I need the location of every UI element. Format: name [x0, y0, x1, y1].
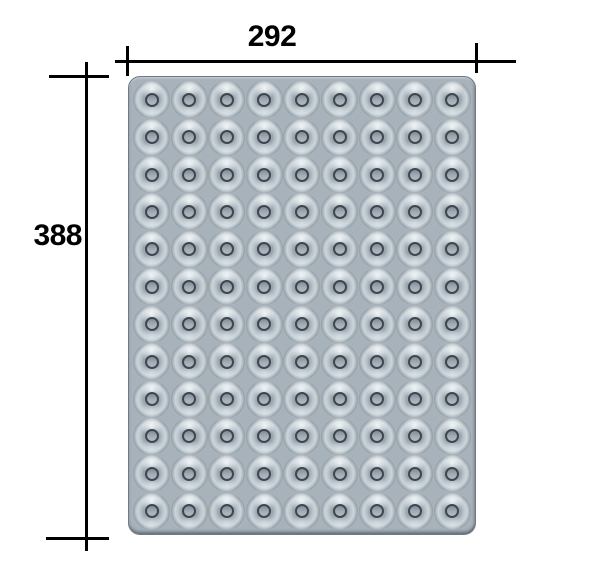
tray-cell [321, 455, 359, 492]
donut-cavity [434, 268, 471, 305]
donut-cavity [283, 193, 320, 230]
tray-cell [358, 493, 396, 530]
tray-cell [321, 380, 359, 417]
tray-cell [208, 81, 246, 118]
donut-cavity [208, 418, 245, 455]
donut-hole [220, 242, 234, 256]
tray-cell [133, 418, 171, 455]
donut-cavity [133, 156, 170, 193]
width-dimension-tick-right [475, 43, 478, 73]
tray-cell [321, 81, 359, 118]
donut-cavity [133, 381, 170, 418]
donut-hole [408, 280, 422, 294]
donut-hole [370, 205, 384, 219]
tray-cell [283, 268, 321, 305]
donut-hole [408, 467, 422, 481]
donut-hole [182, 280, 196, 294]
donut-cavity [434, 343, 471, 380]
donut-cavity [208, 493, 245, 530]
donut-cavity [246, 81, 283, 118]
tray-cell [208, 268, 246, 305]
tray-cell [133, 343, 171, 380]
donut-cavity [171, 268, 208, 305]
donut-cavity [359, 306, 396, 343]
tray-cell [246, 81, 284, 118]
drawing-canvas: 292 388 [0, 0, 600, 586]
donut-cavity [133, 455, 170, 492]
donut-hole [182, 205, 196, 219]
tray-cell [133, 493, 171, 530]
tray-cell [396, 118, 434, 155]
donut-cavity [434, 231, 471, 268]
donut-cavity [283, 268, 320, 305]
donut-hole [333, 168, 347, 182]
tray-cell [358, 81, 396, 118]
donut-hole [220, 168, 234, 182]
tray-cell [133, 193, 171, 230]
tray-cell [246, 118, 284, 155]
donut-cavity [283, 156, 320, 193]
donut-cavity [359, 268, 396, 305]
donut-hole [182, 242, 196, 256]
donut-cavity [208, 119, 245, 156]
donut-hole [220, 467, 234, 481]
donut-cavity [133, 493, 170, 530]
donut-hole [408, 242, 422, 256]
tray-cell [396, 380, 434, 417]
donut-hole [370, 130, 384, 144]
donut-hole [257, 355, 271, 369]
donut-hole [182, 130, 196, 144]
donut-hole [408, 392, 422, 406]
tray-cell [396, 268, 434, 305]
tray-cell [133, 268, 171, 305]
donut-cavity [283, 231, 320, 268]
donut-cavity [283, 306, 320, 343]
donut-cavity [208, 268, 245, 305]
tray-cell [283, 455, 321, 492]
tray-cell [246, 380, 284, 417]
tray-cell [433, 81, 471, 118]
donut-cavity [321, 418, 358, 455]
donut-hole [182, 355, 196, 369]
donut-cavity [133, 119, 170, 156]
donut-cavity [208, 193, 245, 230]
donut-cavity [171, 193, 208, 230]
donut-hole [370, 392, 384, 406]
donut-cavity [283, 343, 320, 380]
donut-cavity [359, 455, 396, 492]
donut-cavity [359, 343, 396, 380]
donut-hole [408, 93, 422, 107]
tray-cell [396, 81, 434, 118]
donut-cavity [321, 343, 358, 380]
tray-cell [433, 455, 471, 492]
tray-cell [396, 343, 434, 380]
donut-cavity [434, 455, 471, 492]
donut-hole [182, 467, 196, 481]
tray-cell [321, 493, 359, 530]
donut-cavity [359, 381, 396, 418]
donut-cavity [246, 193, 283, 230]
donut-hole [445, 467, 459, 481]
donut-cavity [321, 156, 358, 193]
donut-cavity [246, 455, 283, 492]
tray-cell [208, 380, 246, 417]
tray-cell [396, 231, 434, 268]
donut-hole [295, 429, 309, 443]
donut-hole [333, 93, 347, 107]
tray-cell [283, 81, 321, 118]
donut-cavity [133, 306, 170, 343]
tray-cell [208, 455, 246, 492]
donut-hole [182, 93, 196, 107]
tray-cell [396, 493, 434, 530]
donut-cavity [321, 381, 358, 418]
donut-cavity [396, 455, 433, 492]
tray [128, 76, 476, 535]
donut-cavity [246, 119, 283, 156]
tray-cell [133, 231, 171, 268]
donut-hole [333, 205, 347, 219]
tray-cell [433, 268, 471, 305]
tray-cell [133, 306, 171, 343]
donut-cavity [359, 156, 396, 193]
donut-hole [182, 392, 196, 406]
tray-cell [246, 156, 284, 193]
donut-hole [333, 355, 347, 369]
donut-hole [445, 504, 459, 518]
height-dimension-line [85, 62, 88, 551]
tray-cell [133, 156, 171, 193]
tray-cell [246, 231, 284, 268]
donut-hole [257, 242, 271, 256]
donut-hole [295, 93, 309, 107]
donut-hole [220, 280, 234, 294]
tray-cell [358, 268, 396, 305]
donut-hole [295, 242, 309, 256]
donut-hole [408, 205, 422, 219]
donut-cavity [171, 81, 208, 118]
donut-cavity [396, 493, 433, 530]
tray-cell [171, 493, 209, 530]
tray-cell [171, 231, 209, 268]
donut-hole [220, 504, 234, 518]
donut-hole [182, 317, 196, 331]
donut-cavity [208, 343, 245, 380]
donut-hole [370, 168, 384, 182]
donut-hole [333, 130, 347, 144]
donut-cavity [171, 306, 208, 343]
donut-cavity [396, 81, 433, 118]
donut-cavity [396, 119, 433, 156]
tray-cell [321, 306, 359, 343]
tray-cell [208, 193, 246, 230]
donut-hole [145, 280, 159, 294]
tray-cell [358, 455, 396, 492]
donut-hole [370, 317, 384, 331]
donut-hole [145, 168, 159, 182]
tray-cell [283, 343, 321, 380]
donut-cavity [171, 418, 208, 455]
tray-cell [246, 343, 284, 380]
tray-cell [358, 343, 396, 380]
tray-cell [358, 193, 396, 230]
donut-cavity [321, 493, 358, 530]
donut-cavity [133, 193, 170, 230]
donut-hole [257, 130, 271, 144]
donut-hole [145, 392, 159, 406]
donut-cavity [171, 493, 208, 530]
donut-hole [145, 504, 159, 518]
donut-hole [295, 205, 309, 219]
height-dimension-label: 388 [22, 221, 82, 251]
tray-cell [321, 193, 359, 230]
tray-cell [321, 118, 359, 155]
donut-cavity [283, 381, 320, 418]
donut-hole [145, 429, 159, 443]
tray-cell [171, 268, 209, 305]
donut-hole [257, 429, 271, 443]
tray-cell [208, 343, 246, 380]
donut-hole [370, 242, 384, 256]
donut-hole [295, 168, 309, 182]
donut-hole [370, 93, 384, 107]
donut-cavity [208, 81, 245, 118]
donut-cavity [396, 268, 433, 305]
tray-cell [358, 380, 396, 417]
donut-hole [370, 355, 384, 369]
donut-hole [408, 317, 422, 331]
donut-cavity [171, 381, 208, 418]
donut-cavity [283, 493, 320, 530]
donut-cavity [396, 343, 433, 380]
donut-cavity [133, 418, 170, 455]
donut-cavity [208, 306, 245, 343]
width-dimension-label: 292 [222, 22, 322, 52]
tray-cell [133, 118, 171, 155]
tray-cell [321, 418, 359, 455]
tray-cell [358, 231, 396, 268]
tray-cell [396, 156, 434, 193]
donut-cavity [208, 455, 245, 492]
tray-cell [133, 81, 171, 118]
tray-cell [433, 193, 471, 230]
donut-cavity [396, 156, 433, 193]
tray-cell [396, 193, 434, 230]
donut-hole [333, 392, 347, 406]
donut-hole [445, 429, 459, 443]
tray-cell [283, 493, 321, 530]
donut-cavity [283, 455, 320, 492]
tray-cell [246, 306, 284, 343]
donut-cavity [396, 381, 433, 418]
tray-cell [171, 380, 209, 417]
donut-cavity [434, 81, 471, 118]
width-dimension-line [115, 60, 516, 63]
donut-cavity [396, 193, 433, 230]
donut-cavity [359, 418, 396, 455]
donut-hole [220, 429, 234, 443]
donut-hole [295, 392, 309, 406]
tray-cell [246, 418, 284, 455]
donut-hole [295, 355, 309, 369]
donut-cavity [396, 418, 433, 455]
donut-hole [333, 242, 347, 256]
tray-cell [433, 418, 471, 455]
donut-cavity [171, 455, 208, 492]
tray-cell [433, 343, 471, 380]
donut-cavity [208, 156, 245, 193]
tray-cell [246, 268, 284, 305]
tray-cell [208, 493, 246, 530]
donut-cavity [434, 418, 471, 455]
tray-cell [321, 343, 359, 380]
donut-cavity [434, 493, 471, 530]
donut-hole [145, 205, 159, 219]
donut-hole [257, 504, 271, 518]
tray-cell [283, 193, 321, 230]
donut-cavity [434, 306, 471, 343]
donut-hole [408, 429, 422, 443]
tray-cell [246, 493, 284, 530]
donut-cavity [396, 306, 433, 343]
donut-hole [145, 355, 159, 369]
tray-cell [208, 231, 246, 268]
tray-cell [358, 418, 396, 455]
donut-cavity [283, 81, 320, 118]
tray-cell [171, 455, 209, 492]
tray-cell [133, 380, 171, 417]
donut-cavity [208, 231, 245, 268]
donut-cavity [359, 231, 396, 268]
width-dimension-tick-left [126, 46, 129, 76]
donut-hole [220, 93, 234, 107]
donut-cavity [434, 381, 471, 418]
donut-hole [408, 504, 422, 518]
donut-hole [408, 355, 422, 369]
tray-cell [321, 156, 359, 193]
donut-hole [333, 317, 347, 331]
donut-cavity [246, 343, 283, 380]
donut-cavity [359, 193, 396, 230]
donut-cavity [321, 231, 358, 268]
height-dimension-tick-bottom [46, 537, 109, 540]
donut-cavity [321, 455, 358, 492]
tray-cell [396, 418, 434, 455]
donut-hole [408, 130, 422, 144]
tray-cell [433, 231, 471, 268]
tray-cell [283, 231, 321, 268]
donut-cavity [246, 306, 283, 343]
donut-hole [445, 242, 459, 256]
tray-cell [171, 156, 209, 193]
donut-hole [295, 504, 309, 518]
tray-cell [246, 193, 284, 230]
donut-cavity [321, 193, 358, 230]
donut-cavity [246, 156, 283, 193]
donut-cavity [246, 493, 283, 530]
donut-cavity [171, 119, 208, 156]
donut-hole [145, 242, 159, 256]
donut-hole [333, 429, 347, 443]
tray-cell [171, 306, 209, 343]
donut-cavity [359, 81, 396, 118]
tray-cell [283, 418, 321, 455]
donut-cavity [246, 418, 283, 455]
donut-hole [445, 93, 459, 107]
donut-hole [370, 429, 384, 443]
donut-hole [333, 504, 347, 518]
donut-hole [445, 392, 459, 406]
tray-cell [433, 380, 471, 417]
donut-cavity [171, 343, 208, 380]
donut-cavity [133, 81, 170, 118]
tray-cell [171, 343, 209, 380]
donut-hole [333, 280, 347, 294]
donut-hole [445, 168, 459, 182]
tray-cell [171, 193, 209, 230]
tray-cell [321, 268, 359, 305]
donut-hole [145, 130, 159, 144]
donut-cavity [133, 231, 170, 268]
donut-hole [220, 317, 234, 331]
donut-cavity [208, 381, 245, 418]
tray-cell [171, 418, 209, 455]
tray-cell [283, 306, 321, 343]
tray-cell [171, 81, 209, 118]
donut-hole [295, 317, 309, 331]
donut-hole [182, 429, 196, 443]
donut-hole [220, 355, 234, 369]
height-dimension-tick-top [49, 75, 109, 78]
donut-hole [257, 168, 271, 182]
tray-cell [246, 455, 284, 492]
donut-hole [370, 504, 384, 518]
donut-hole [445, 205, 459, 219]
tray-cell [433, 156, 471, 193]
donut-cavity [321, 306, 358, 343]
donut-cavity [434, 156, 471, 193]
donut-hole [295, 280, 309, 294]
donut-cavity [283, 119, 320, 156]
donut-cavity [283, 418, 320, 455]
tray-cell [133, 455, 171, 492]
tray-cell [358, 118, 396, 155]
tray-cell [208, 306, 246, 343]
tray-cell [396, 455, 434, 492]
tray-cell [433, 306, 471, 343]
donut-hole [220, 130, 234, 144]
donut-cavity [133, 343, 170, 380]
donut-hole [182, 504, 196, 518]
tray-cell [358, 306, 396, 343]
donut-cavity [246, 268, 283, 305]
donut-hole [145, 317, 159, 331]
donut-hole [145, 93, 159, 107]
donut-cavity [171, 156, 208, 193]
donut-hole [445, 130, 459, 144]
donut-hole [445, 317, 459, 331]
donut-hole [145, 467, 159, 481]
donut-cavity [359, 493, 396, 530]
donut-hole [257, 392, 271, 406]
tray-cell [433, 493, 471, 530]
donut-cavity [246, 231, 283, 268]
donut-cavity [246, 381, 283, 418]
donut-cavity [133, 268, 170, 305]
donut-hole [257, 317, 271, 331]
